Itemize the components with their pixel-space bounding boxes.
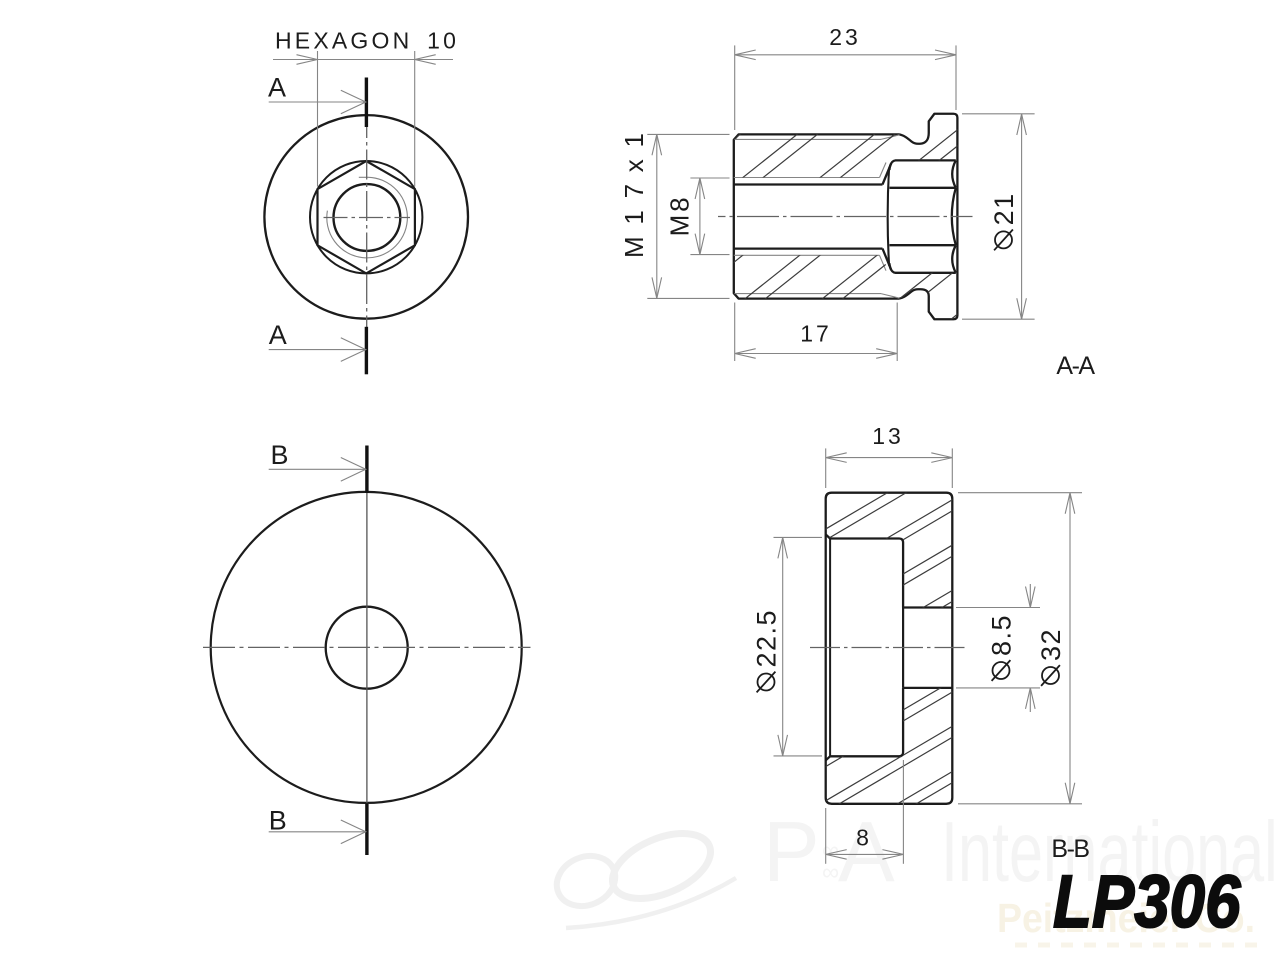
svg-text:LP306: LP306 — [1053, 861, 1241, 944]
svg-text:A-A: A-A — [1056, 352, 1095, 380]
svg-text:A: A — [269, 320, 287, 350]
svg-text:B: B — [271, 440, 289, 470]
svg-text:22.5: 22.5 — [752, 609, 782, 668]
svg-text:B: B — [269, 806, 287, 836]
svg-text:∞: ∞ — [822, 859, 839, 886]
svg-text:32: 32 — [1036, 628, 1066, 661]
svg-text:21: 21 — [989, 192, 1019, 225]
svg-text:A: A — [268, 73, 286, 103]
svg-text:A: A — [838, 805, 895, 900]
svg-text:B-B: B-B — [1051, 835, 1089, 863]
svg-text:8: 8 — [856, 825, 872, 851]
svg-text:M8: M8 — [665, 197, 695, 236]
svg-text:P: P — [763, 805, 820, 900]
svg-text:17: 17 — [800, 321, 832, 347]
svg-text:23: 23 — [829, 24, 861, 50]
svg-text:8.5: 8.5 — [987, 614, 1017, 656]
svg-text:HEXAGON 10: HEXAGON 10 — [275, 28, 459, 54]
svg-text:13: 13 — [872, 423, 904, 449]
